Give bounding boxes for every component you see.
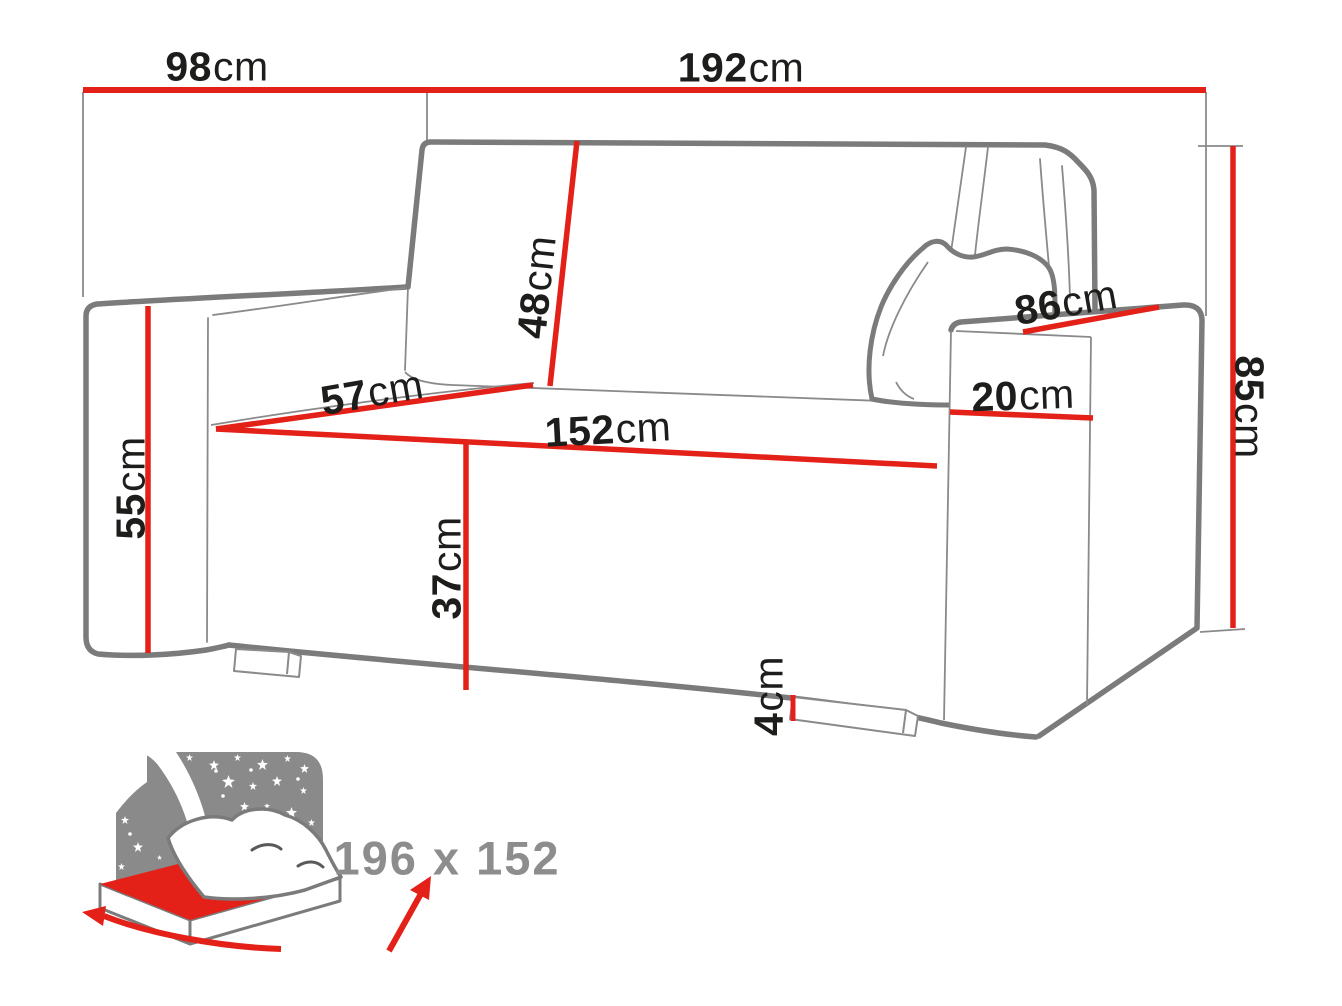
sofa-legs — [234, 649, 918, 736]
sofa-dimension-diagram: 98cm 192cm 48cm 57cm 152cm 55cm 37cm 4cm… — [0, 0, 1342, 1006]
dim-backrest-height-label: 48cm — [511, 234, 563, 341]
dim-overall-width-label: 192cm — [678, 48, 805, 89]
right-armrest — [941, 304, 1202, 737]
sofa-line-art — [0, 0, 1342, 1006]
dim-seat-width-label: 152cm — [544, 406, 673, 454]
dim-overall-height-label: 85cm — [1229, 355, 1270, 458]
dim-seat-height-label: 37cm — [427, 516, 468, 619]
dim-armrest-height-label: 55cm — [111, 436, 152, 539]
dim-leg-height-label: 4cm — [749, 656, 790, 736]
sleeping-area-size-label: 196 x 152 — [333, 835, 560, 882]
dim-overall-depth-label: 98cm — [165, 47, 268, 88]
dim-armrest-width-label: 20cm — [971, 374, 1076, 419]
